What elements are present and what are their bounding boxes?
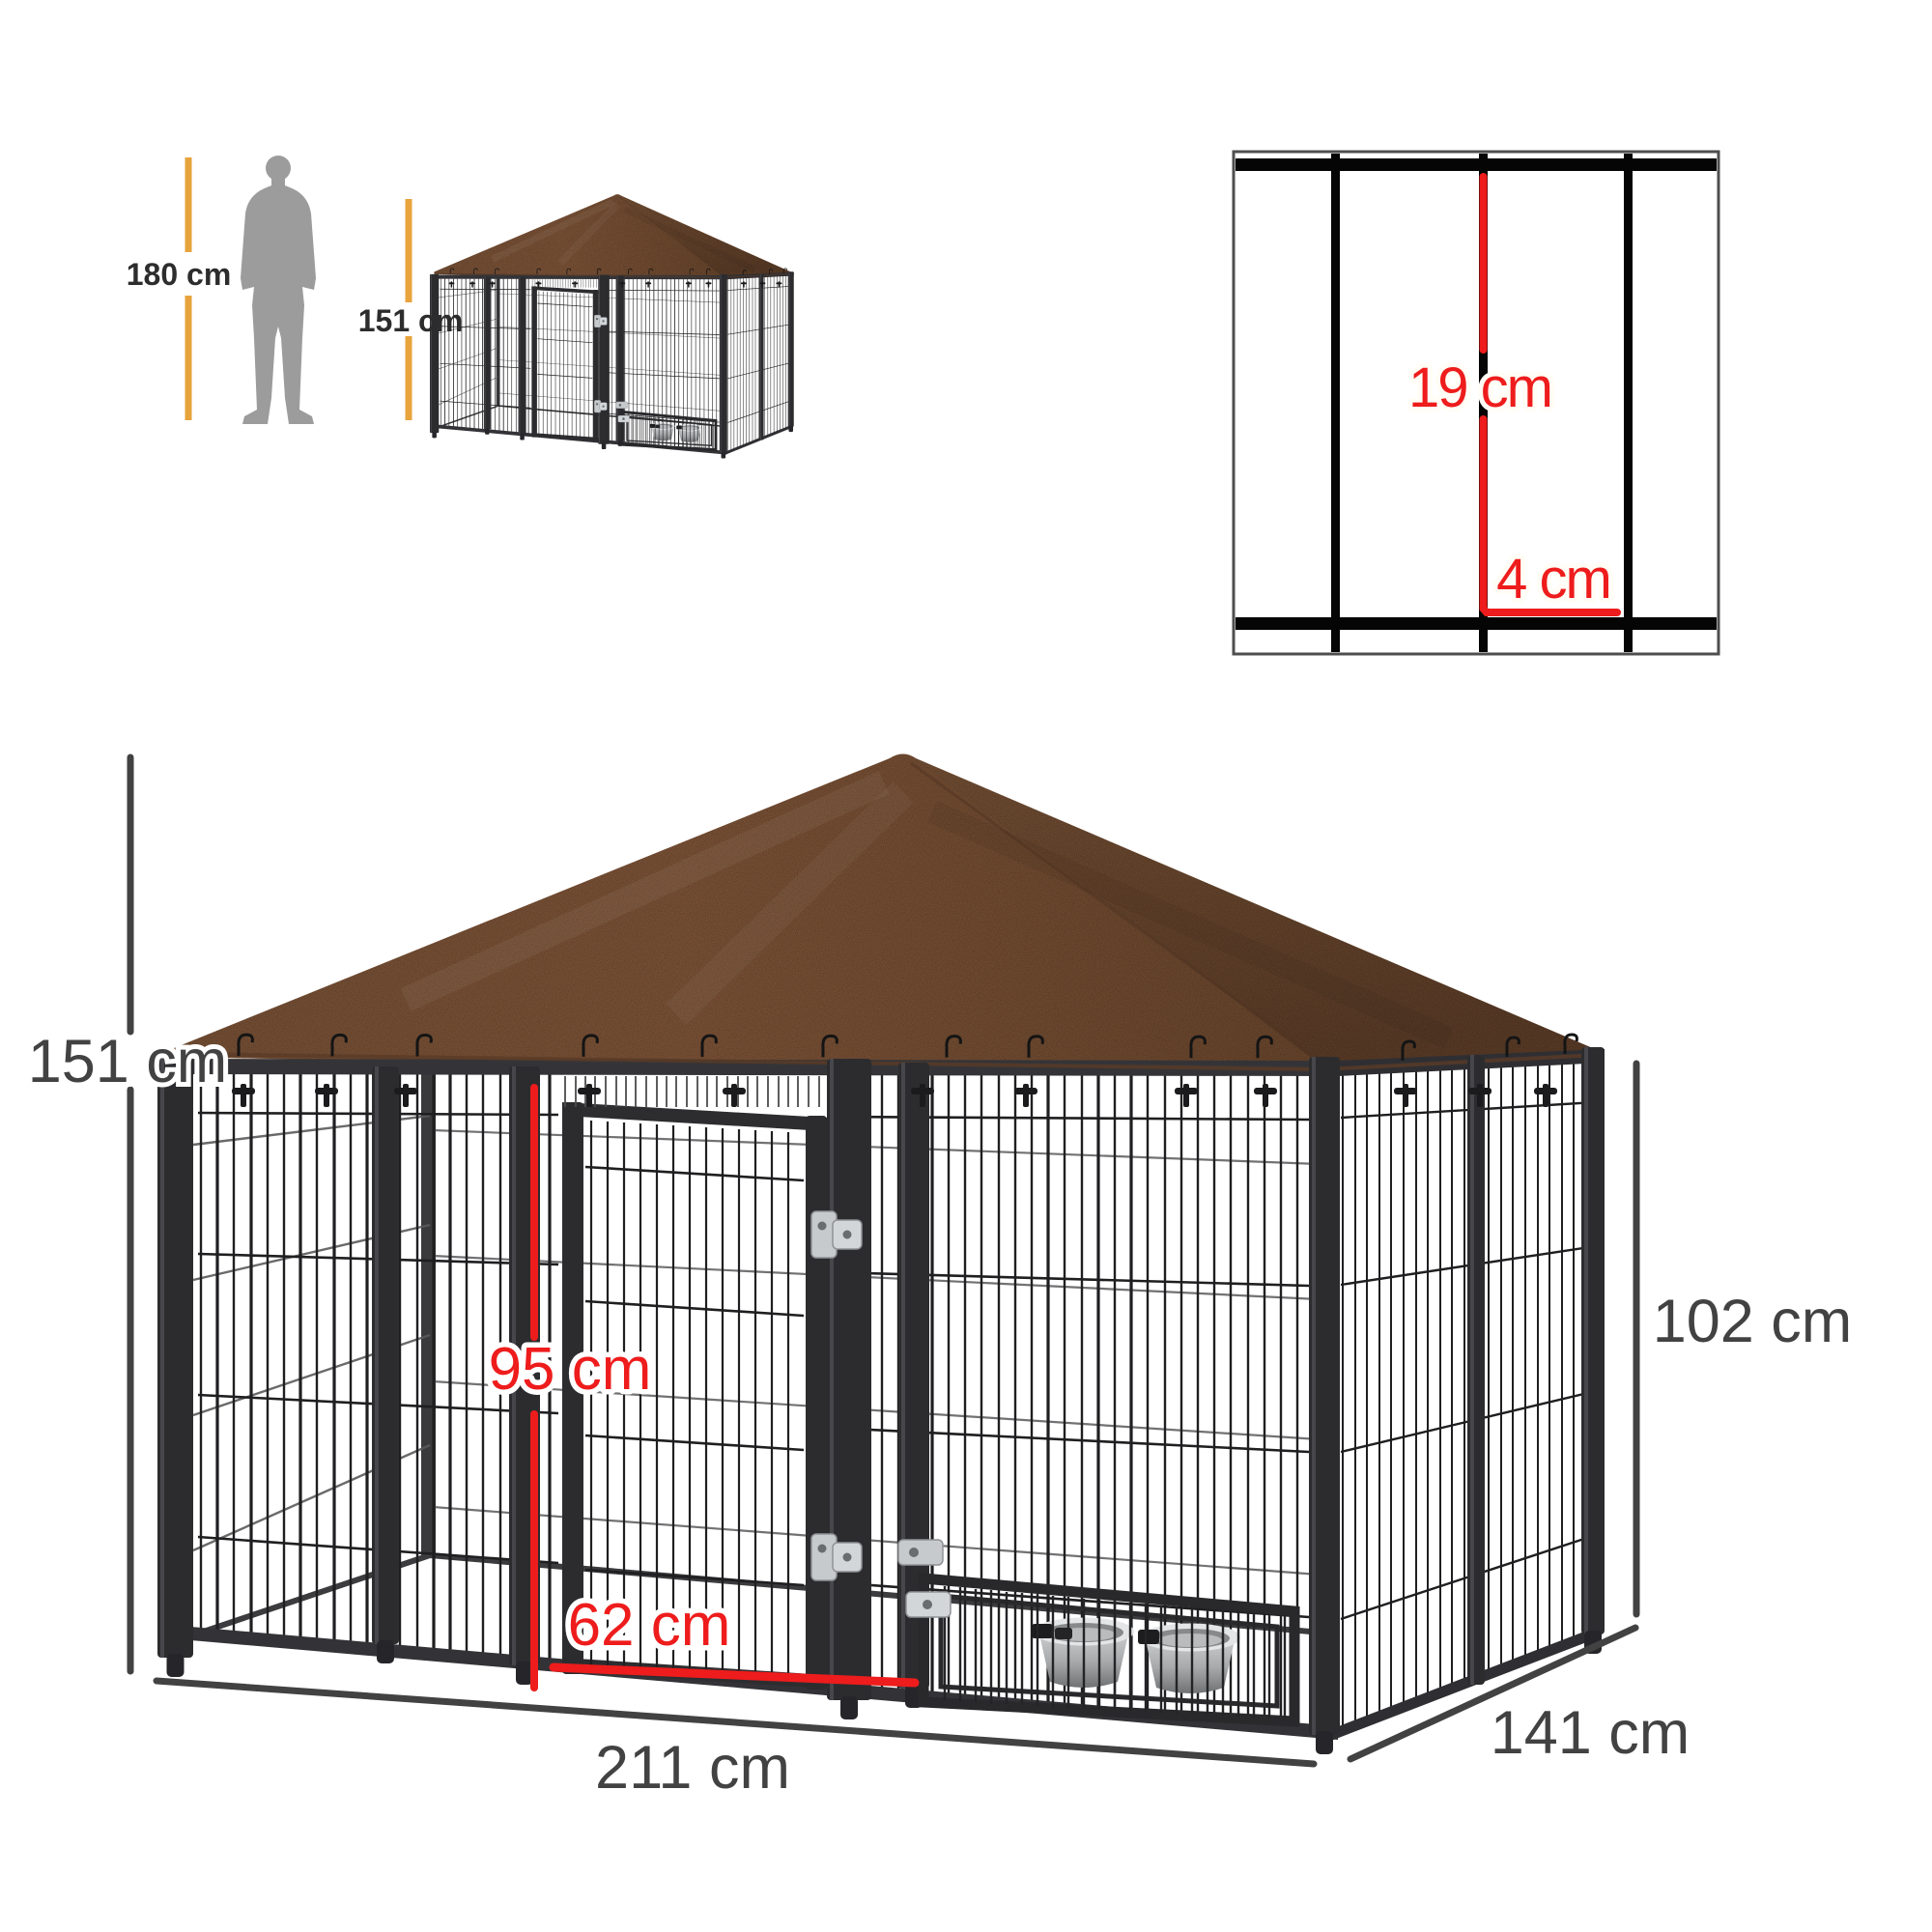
svg-text:102 cm: 102 cm — [1653, 1288, 1853, 1355]
svg-text:4 cm: 4 cm — [1496, 548, 1610, 611]
svg-text:95 cm: 95 cm — [489, 1336, 652, 1403]
svg-text:141 cm: 141 cm — [1491, 1699, 1690, 1767]
svg-text:151 cm: 151 cm — [28, 1028, 228, 1095]
svg-text:211 cm: 211 cm — [595, 1734, 790, 1802]
svg-text:180 cm: 180 cm — [127, 257, 232, 292]
svg-text:151 cm: 151 cm — [358, 303, 464, 338]
svg-text:62 cm: 62 cm — [568, 1592, 731, 1659]
svg-text:19 cm: 19 cm — [1408, 356, 1551, 419]
